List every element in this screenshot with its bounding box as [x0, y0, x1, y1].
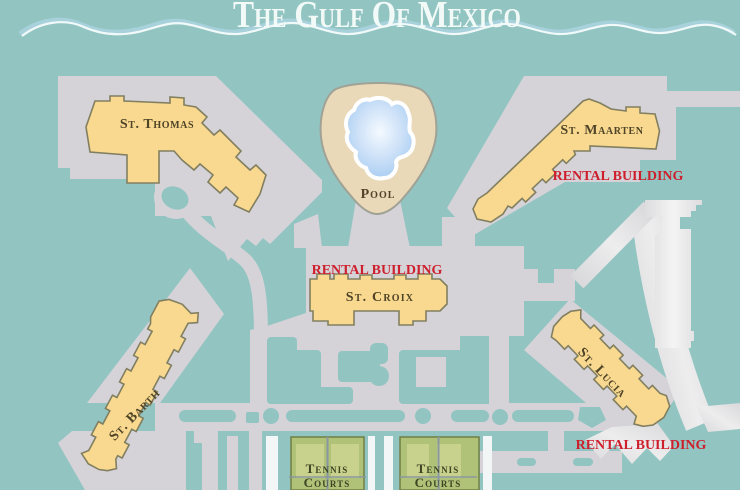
svg-text:St. Croix: St. Croix — [346, 290, 414, 305]
svg-text:Pool: Pool — [361, 187, 396, 202]
svg-text:RENTAL BUILDING: RENTAL BUILDING — [553, 169, 684, 184]
svg-text:RENTAL BUILDING: RENTAL BUILDING — [576, 438, 707, 453]
svg-text:St. Thomas: St. Thomas — [120, 117, 194, 132]
svg-text:Tennis: Tennis — [417, 461, 460, 476]
svg-text:St. Maarten: St. Maarten — [560, 123, 643, 138]
svg-text:Tennis: Tennis — [306, 461, 349, 476]
svg-text:Courts: Courts — [304, 475, 351, 490]
svg-text:The Gulf Of Mexico: The Gulf Of Mexico — [233, 0, 521, 36]
svg-text:Courts: Courts — [415, 475, 462, 490]
svg-text:RENTAL BUILDING: RENTAL BUILDING — [312, 263, 443, 278]
